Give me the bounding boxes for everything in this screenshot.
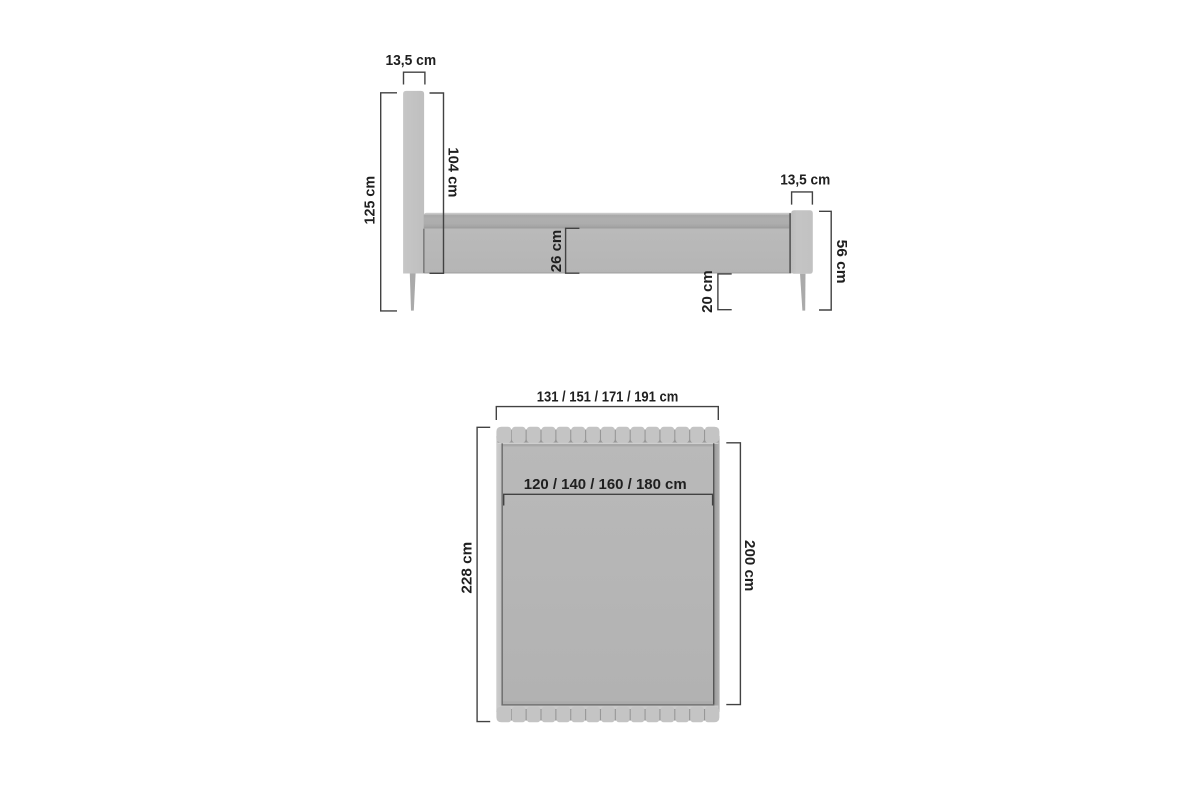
svg-text:200 cm: 200 cm: [741, 540, 758, 591]
svg-text:228 cm: 228 cm: [458, 542, 475, 594]
svg-text:13,5 cm: 13,5 cm: [385, 52, 436, 69]
svg-text:131 / 151 / 171 / 191 cm: 131 / 151 / 171 / 191 cm: [537, 389, 679, 406]
svg-text:120 / 140 / 160 / 180 cm: 120 / 140 / 160 / 180 cm: [524, 476, 687, 493]
svg-text:20 cm: 20 cm: [699, 270, 716, 313]
svg-text:125 cm: 125 cm: [362, 176, 379, 225]
svg-text:13,5 cm: 13,5 cm: [780, 172, 830, 189]
svg-text:56 cm: 56 cm: [833, 240, 850, 284]
svg-text:104 cm: 104 cm: [445, 147, 462, 197]
svg-text:26 cm: 26 cm: [548, 230, 565, 273]
